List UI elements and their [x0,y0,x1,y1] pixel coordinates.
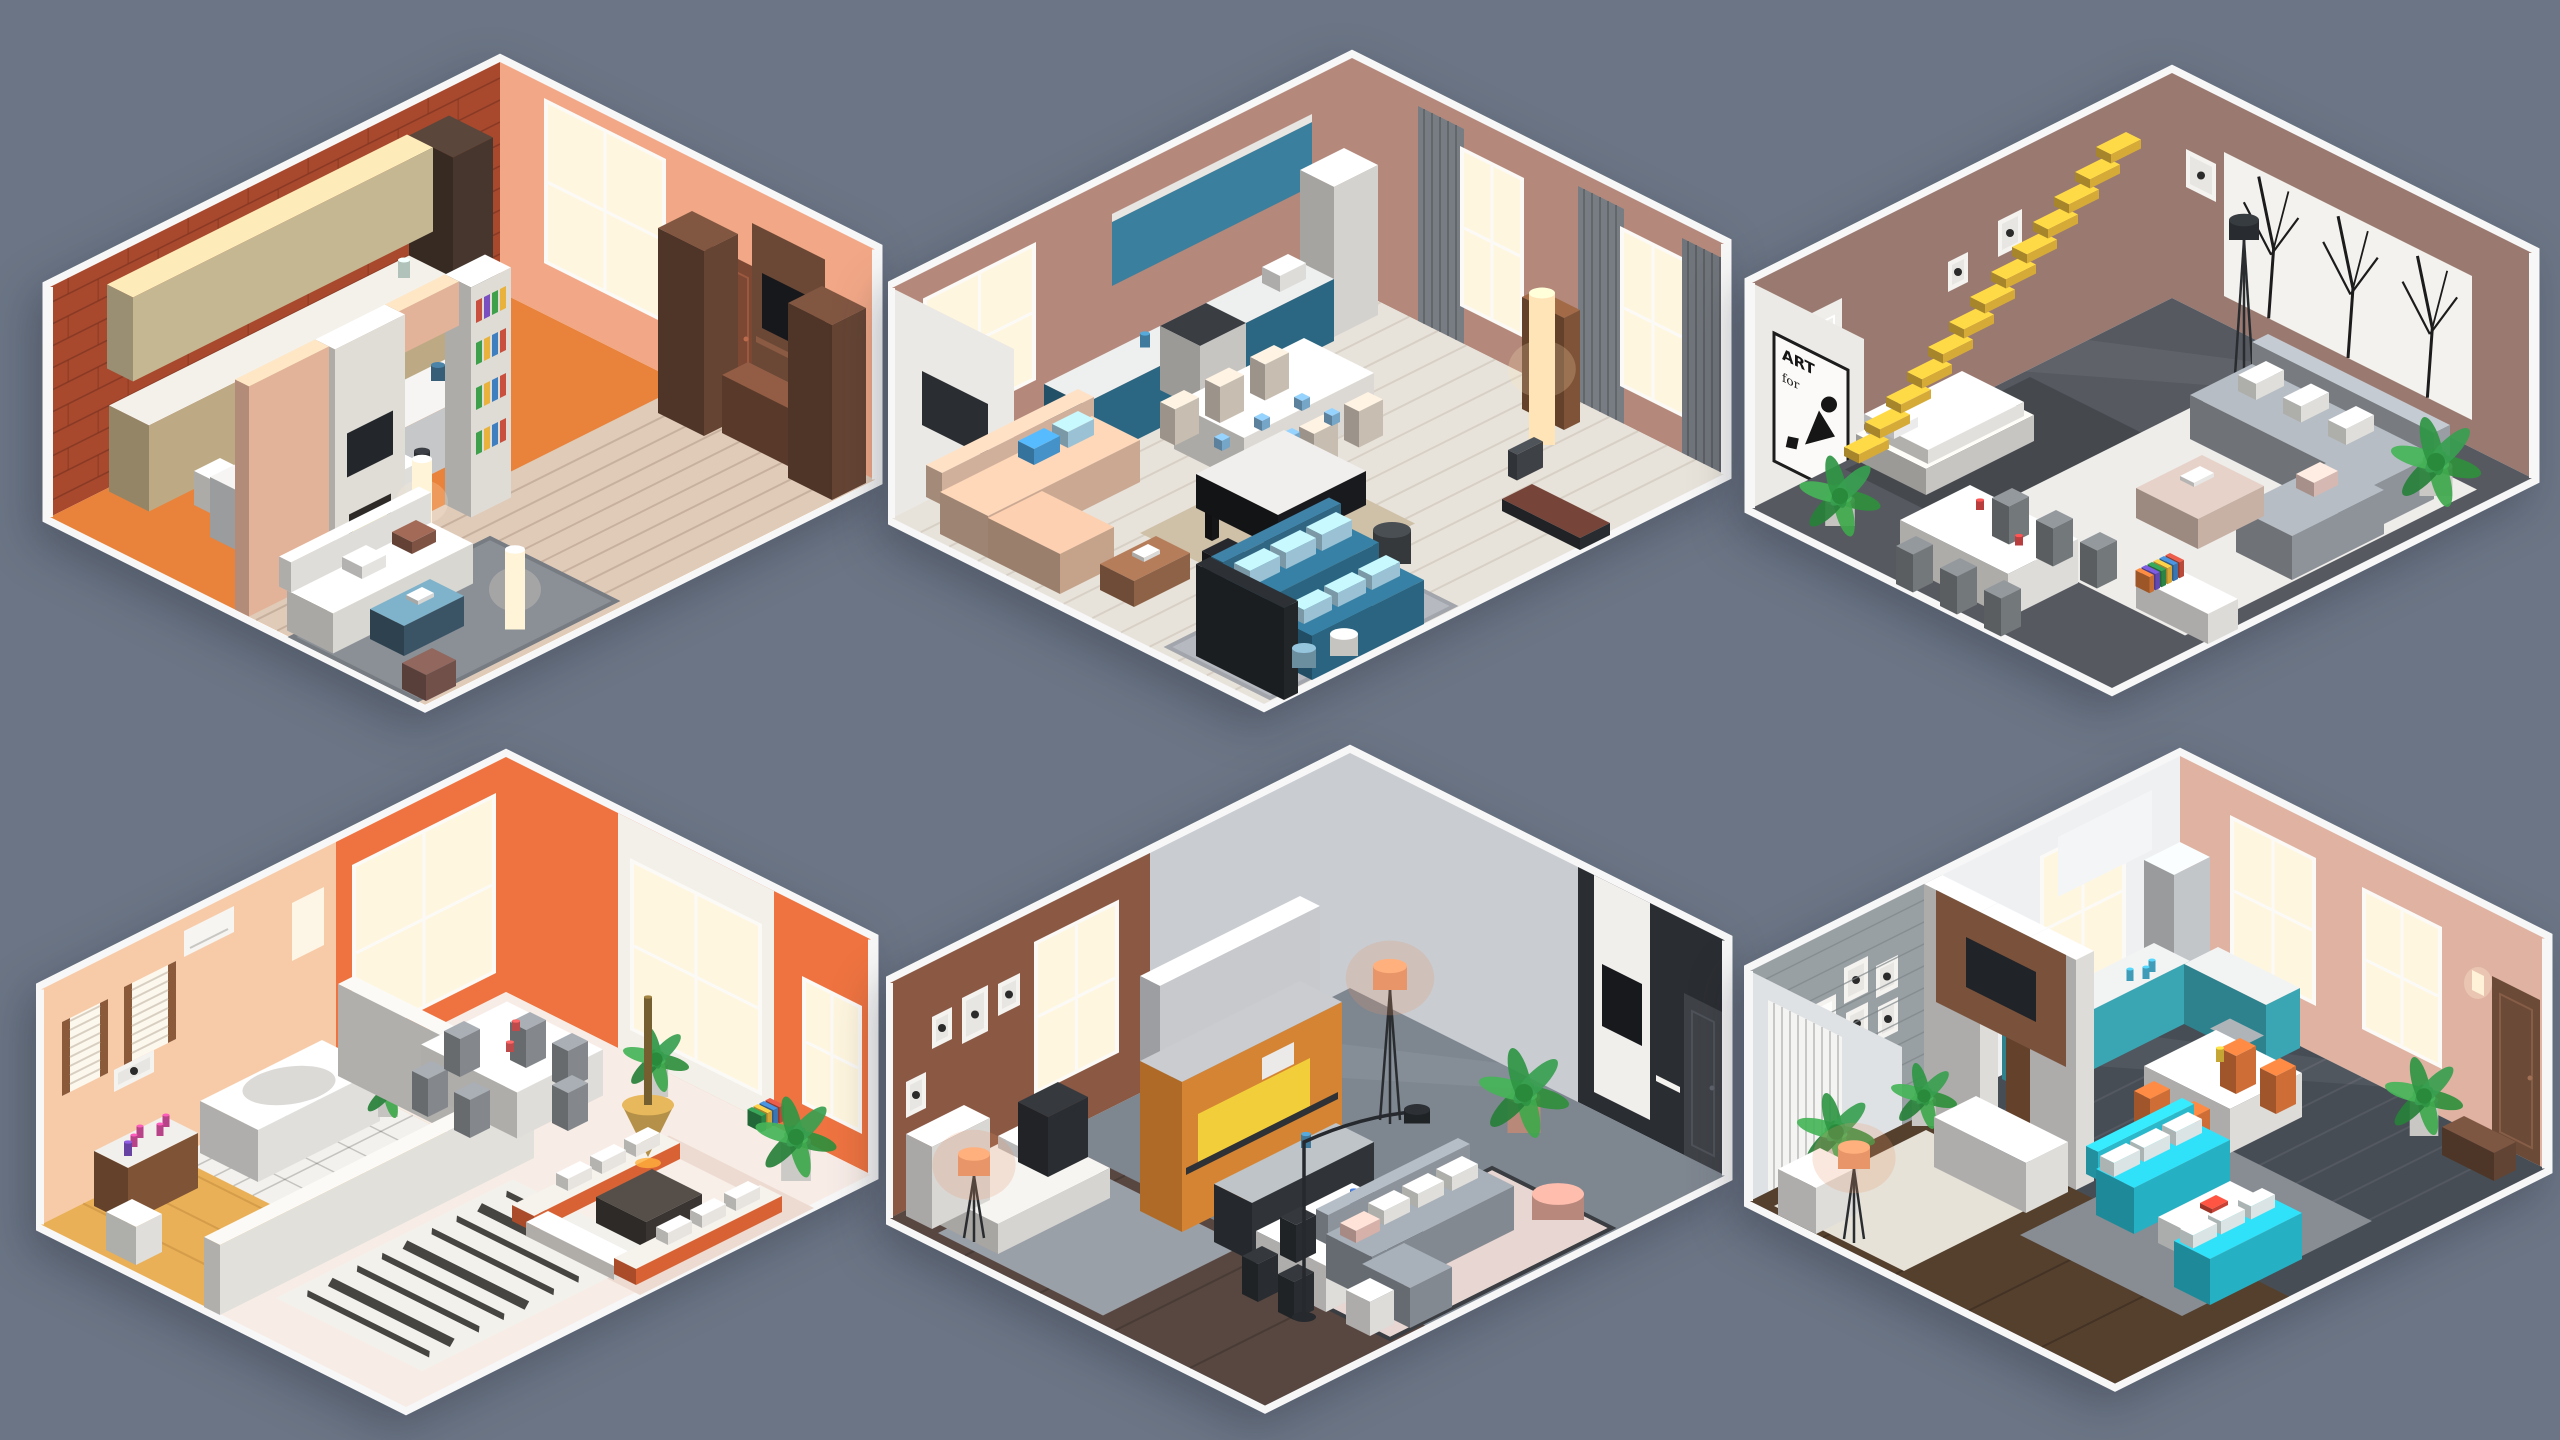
isometric-rooms-collage: ARTfor [0,0,2560,1440]
room-render-loft-yellow-stairs: ARTfor [1744,56,2560,756]
room-bathroom-sunken-lounge [36,742,886,1440]
room-teal-living-kitchen [1744,742,2560,1440]
room-living-piano-blue-sofas [888,42,1738,742]
room-render-kitchen-living-brick [42,46,892,746]
room-render-modern-kitchen-gray-lounge [886,740,1736,1440]
room-kitchen-living-brick [42,46,892,746]
room-render-teal-living-kitchen [1744,742,2560,1440]
room-loft-yellow-stairs: ARTfor [1744,56,2560,756]
room-modern-kitchen-gray [886,740,1736,1440]
room-render-bathroom-sunken-lounge [36,742,886,1440]
room-render-living-piano-blue-sofas [888,42,1738,742]
